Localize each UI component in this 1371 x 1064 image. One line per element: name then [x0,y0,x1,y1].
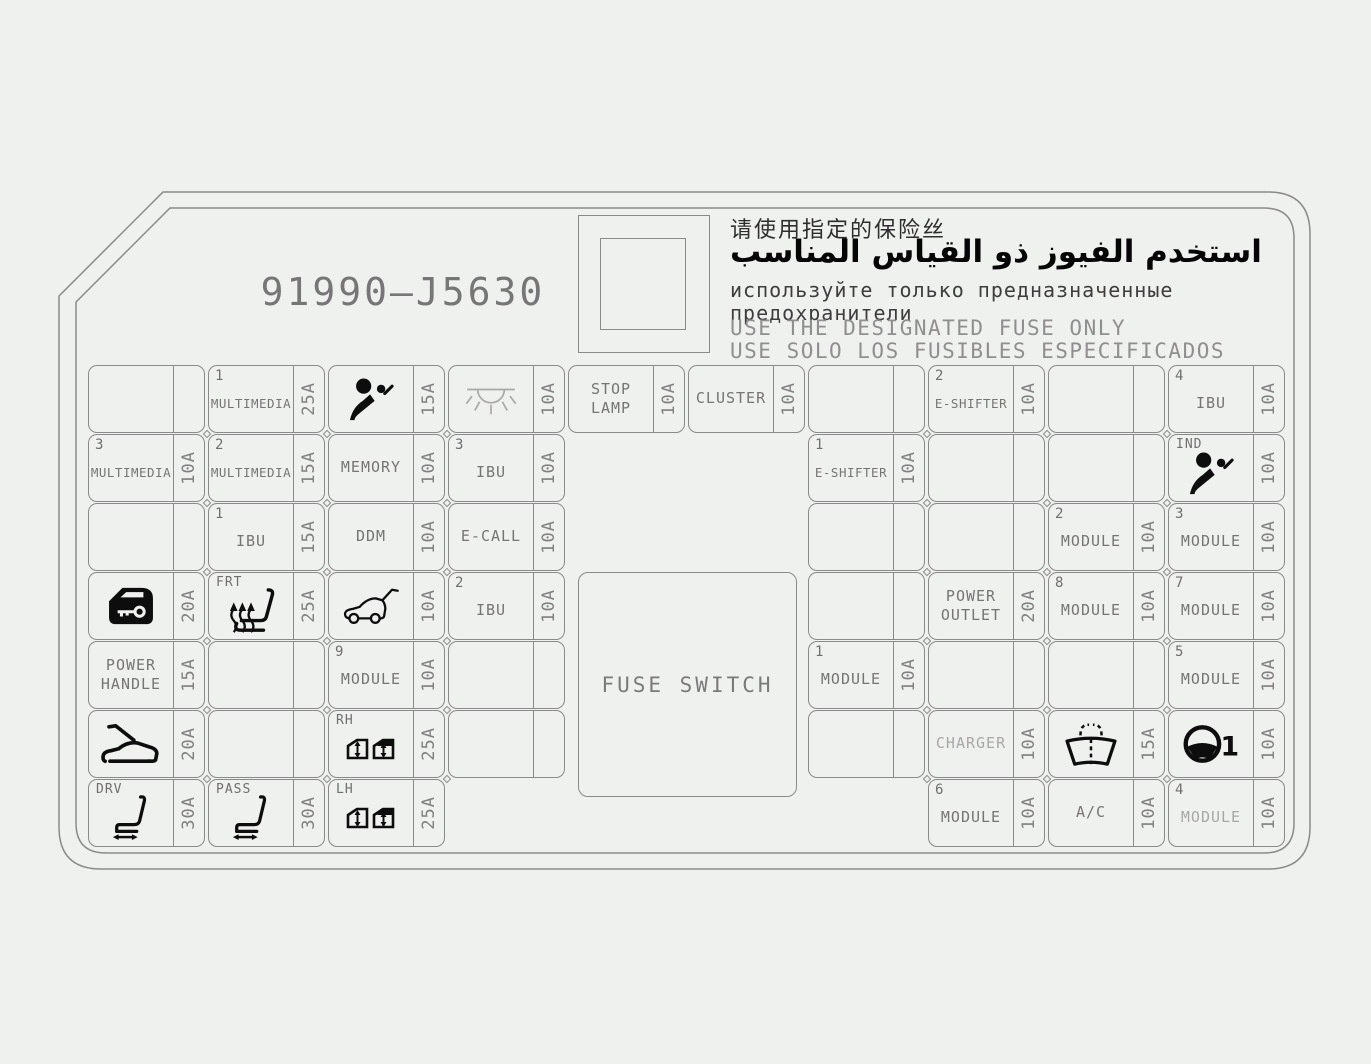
fuse-index-number: 2 [455,575,463,591]
fuse-amp-rating: 30A [173,780,204,846]
fuse-cell-1-module: 1 MODULE 10A [808,641,925,709]
fuse-label: IBU [476,601,506,621]
fuse-cell-ind-airbag: IND 10A [1168,434,1285,502]
fuse-label: MODULE [941,808,1001,828]
fuse-label: MODULE [1181,808,1241,828]
fuse-cell-empty [928,434,1045,502]
fuse-cell-steering-1: 1 10A [1168,710,1285,778]
fuse-box-cover-diagram: 91990—J5630 请使用指定的保险丝 استخدم الفيوز ذو ا… [0,0,1371,1064]
fuse-cell-a-c: A/C 10A [1048,779,1165,847]
fuse-cell-tailgate: 10A [328,572,445,640]
fuse-cell-empty [1048,434,1165,502]
fuse-amp-rating: 10A [1253,366,1284,432]
fuse-cell-charger: CHARGER 10A [928,710,1045,778]
fuse-cell-empty [1048,365,1165,433]
fuse-cell-empty [208,710,325,778]
power-seat-icon [230,795,272,841]
fuse-amp-rating [173,504,204,570]
part-number: 91990—J5630 [238,270,568,314]
fuse-amp-rating: 10A [1253,711,1284,777]
fuse-amp-rating: 15A [293,435,324,501]
fuse-label: MULTIMEDIA [91,465,171,481]
fuse-amp-rating: 25A [413,780,444,846]
fuse-switch-label: FUSE SWITCH [601,673,773,697]
fuse-label: CHARGER [936,734,1006,754]
fuse-amp-rating: 25A [293,573,324,639]
fuse-amp-rating: 10A [413,504,444,570]
fuse-label: E-CALL [461,527,521,547]
fuse-cell-2-module: 2 MODULE 10A [1048,503,1165,571]
fuse-label: IBU [1196,394,1226,414]
fuse-amp-rating [533,711,564,777]
fuse-index-number: 2 [1055,506,1063,522]
fuse-amp-rating: 10A [173,435,204,501]
fuse-cell-stop-lamp: STOP LAMP 10A [568,365,685,433]
fuse-cell-empty [1048,641,1165,709]
fuse-label: MODULE [1181,532,1241,552]
fuse-cell-memory: MEMORY 10A [328,434,445,502]
fuse-cell-wiper: 15A [1048,710,1165,778]
fuse-amp-rating [1013,435,1044,501]
fuse-amp-rating: 10A [1253,435,1284,501]
fuse-amp-rating: 10A [1253,504,1284,570]
fuse-amp-rating: 20A [1013,573,1044,639]
fuse-cell-4-ibu: 4 IBU 10A [1168,365,1285,433]
fuse-cell-rh-window-switches: RH 25A [328,710,445,778]
fuse-amp-rating: 10A [653,366,684,432]
fuse-cell-empty [808,365,925,433]
fuse-label: DDM [356,527,386,547]
fuse-amp-rating: 10A [413,435,444,501]
airbag-icon [345,377,397,421]
fuse-amp-rating [293,642,324,708]
fuse-index-number: 3 [95,437,103,453]
lamp-icon [462,380,520,418]
fuse-label: MODULE [1061,601,1121,621]
fuse-label: MODULE [341,670,401,690]
fuse-label: A/C [1076,803,1106,823]
fuse-cell-frt-seat-heater: FRT 25A [208,572,325,640]
fuse-amp-rating: 10A [1133,573,1164,639]
airbag-icon [1185,451,1237,495]
fuse-label: MULTIMEDIA [211,396,291,412]
fuse-amp-rating [1013,504,1044,570]
fuse-amp-rating [893,366,924,432]
fuse-cell-lamp: 10A [448,365,565,433]
fuse-index-number: 4 [1175,368,1183,384]
fuse-amp-rating: 20A [173,573,204,639]
fuse-position-tag: DRV [96,782,122,797]
fuse-amp-rating: 10A [533,573,564,639]
steering-1-icon: 1 [1181,723,1241,765]
fuse-amp-rating: 15A [173,642,204,708]
fuse-cell-3-module: 3 MODULE 10A [1168,503,1285,571]
fuse-cell-7-module: 7 MODULE 10A [1168,572,1285,640]
fuse-amp-rating: 10A [1253,780,1284,846]
fuse-amp-rating: 10A [773,366,804,432]
fuse-amp-rating: 10A [1133,504,1164,570]
fuse-switch-box: FUSE SWITCH [578,572,797,797]
fuse-amp-rating [893,504,924,570]
fuse-amp-rating: 10A [893,435,924,501]
fuse-label: MODULE [1181,601,1241,621]
fuse-label: STOP LAMP [591,380,631,419]
fuse-amp-rating: 25A [413,711,444,777]
fuse-amp-rating: 10A [1253,573,1284,639]
fuse-puller-symbol [578,215,710,353]
fuse-amp-rating: 10A [1013,780,1044,846]
fuse-amp-rating: 15A [1133,711,1164,777]
fuse-cell-empty [808,572,925,640]
fuse-label: MULTIMEDIA [211,465,291,481]
hood-open-icon [101,722,161,766]
fuse-cell-8-module: 8 MODULE 10A [1048,572,1165,640]
fuse-cell-empty [448,641,565,709]
fuse-cell-3-multimedia: 3 MULTIMEDIA 10A [88,434,205,502]
fuse-label: MODULE [1061,532,1121,552]
fuse-position-tag: IND [1176,437,1202,452]
fuse-index-number: 8 [1055,575,1063,591]
fuse-cell-1-e-shifter: 1 E-SHIFTER 10A [808,434,925,502]
fuse-amp-rating [1133,366,1164,432]
fuse-index-number: 1 [215,506,223,522]
notice-english: USE THE DESIGNATED FUSE ONLY [730,316,1126,340]
fuse-amp-rating: 10A [1133,780,1164,846]
fuse-position-tag: LH [336,782,354,797]
fuse-index-number: 5 [1175,644,1183,660]
fuse-index-number: 1 [815,644,823,660]
window-switches-icon [346,737,396,760]
fuse-cell-empty [448,710,565,778]
fuse-label: MODULE [1181,670,1241,690]
fuse-label: MEMORY [341,458,401,478]
fuse-cell-lh-window-switches: LH 25A [328,779,445,847]
tailgate-icon [341,585,401,627]
fuse-cell-pass-power-seat: PASS 30A [208,779,325,847]
fuse-puller-symbol-inner [600,238,686,330]
fuse-label: POWER HANDLE [101,656,161,695]
fuse-cell-2-ibu: 2 IBU 10A [448,572,565,640]
fuse-label: E-SHIFTER [935,396,1007,412]
fuse-index-number: 7 [1175,575,1183,591]
fuse-amp-rating [173,366,204,432]
fuse-amp-rating: 10A [533,504,564,570]
fuse-index-number: 4 [1175,782,1183,798]
fuse-amp-rating: 25A [293,366,324,432]
power-seat-icon [110,795,152,841]
fuse-amp-rating: 10A [413,573,444,639]
fuse-index-number: 2 [215,437,223,453]
fuse-position-tag: FRT [216,575,242,590]
fuse-label: E-SHIFTER [815,465,887,481]
fuse-cell-power-outlet: POWER OUTLET 20A [928,572,1045,640]
fuse-amp-rating: 10A [533,366,564,432]
fuse-cell-e-call: E-CALL 10A [448,503,565,571]
fuse-amp-rating [1013,642,1044,708]
fuse-amp-rating: 20A [173,711,204,777]
fuse-cell-6-module: 6 MODULE 10A [928,779,1045,847]
fuse-label: MODULE [821,670,881,690]
panel-outline [0,0,1371,1064]
fuse-cell-5-module: 5 MODULE 10A [1168,641,1285,709]
wiper-icon [1064,721,1118,767]
seat-heater-icon [224,588,278,634]
fuse-amp-rating [893,573,924,639]
door-key-icon [106,585,156,627]
fuse-amp-rating: 10A [533,435,564,501]
fuse-index-number: 2 [935,368,943,384]
fuse-index-number: 3 [1175,506,1183,522]
fuse-cell-1-ibu: 1 IBU 15A [208,503,325,571]
fuse-cell-empty [88,365,205,433]
fuse-index-number: 9 [335,644,343,660]
fuse-cell-empty [88,503,205,571]
fuse-cell-empty [928,503,1045,571]
fuse-index-number: 1 [215,368,223,384]
fuse-cell-hood-open: 20A [88,710,205,778]
fuse-cell-cluster: CLUSTER 10A [688,365,805,433]
fuse-position-tag: PASS [216,782,251,797]
fuse-amp-rating: 15A [293,504,324,570]
notice-spanish: USE SOLO LOS FUSIBLES ESPECIFICADOS [730,339,1225,363]
fuse-cell-drv-power-seat: DRV 30A [88,779,205,847]
fuse-cell-empty [808,503,925,571]
fuse-cell-4-module: 4 MODULE 10A [1168,779,1285,847]
fuse-cell-airbag: 15A [328,365,445,433]
fuse-index-number: 6 [935,782,943,798]
fuse-cell-empty [928,641,1045,709]
fuse-amp-rating: 15A [413,366,444,432]
fuse-amp-rating [1133,435,1164,501]
fuse-label: CLUSTER [696,389,766,409]
fuse-cell-2-e-shifter: 2 E-SHIFTER 10A [928,365,1045,433]
fuse-cell-ddm: DDM 10A [328,503,445,571]
fuse-cell-door-key: 20A [88,572,205,640]
fuse-cell-power-handle: POWER HANDLE 15A [88,641,205,709]
fuse-index-number: 3 [455,437,463,453]
fuse-label: IBU [236,532,266,552]
fuse-amp-rating: 10A [1013,711,1044,777]
svg-text:1: 1 [1221,731,1240,762]
fuse-cell-3-ibu: 3 IBU 10A [448,434,565,502]
fuse-amp-rating: 10A [1013,366,1044,432]
fuse-amp-rating [293,711,324,777]
fuse-amp-rating: 10A [1253,642,1284,708]
fuse-amp-rating [533,642,564,708]
fuse-amp-rating [1133,642,1164,708]
notice-arabic: استخدم الفيوز ذو القياس المناسب [730,234,1262,270]
fuse-position-tag: RH [336,713,354,728]
window-switches-icon [346,806,396,829]
fuse-label: IBU [476,463,506,483]
fuse-cell-empty [208,641,325,709]
fuse-amp-rating: 10A [893,642,924,708]
fuse-index-number: 1 [815,437,823,453]
fuse-amp-rating [893,711,924,777]
fuse-amp-rating: 30A [293,780,324,846]
fuse-amp-rating: 10A [413,642,444,708]
fuse-cell-1-multimedia: 1 MULTIMEDIA 25A [208,365,325,433]
fuse-cell-empty [808,710,925,778]
fuse-label: POWER OUTLET [941,587,1001,626]
fuse-cell-2-multimedia: 2 MULTIMEDIA 15A [208,434,325,502]
fuse-cell-9-module: 9 MODULE 10A [328,641,445,709]
notice-russian-line1: используйте только предназначенные [730,278,1173,302]
